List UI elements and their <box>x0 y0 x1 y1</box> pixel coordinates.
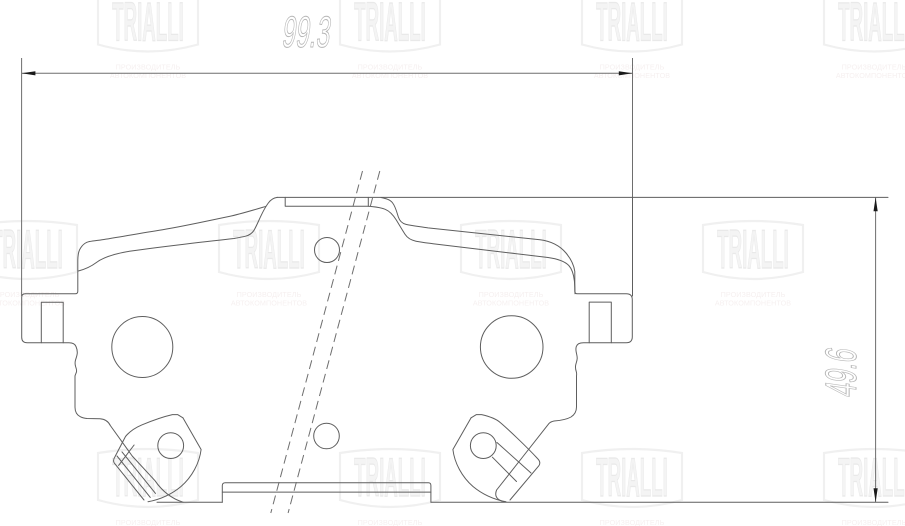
svg-text:99.3: 99.3 <box>280 7 335 57</box>
svg-text:49.6: 49.6 <box>816 344 866 399</box>
